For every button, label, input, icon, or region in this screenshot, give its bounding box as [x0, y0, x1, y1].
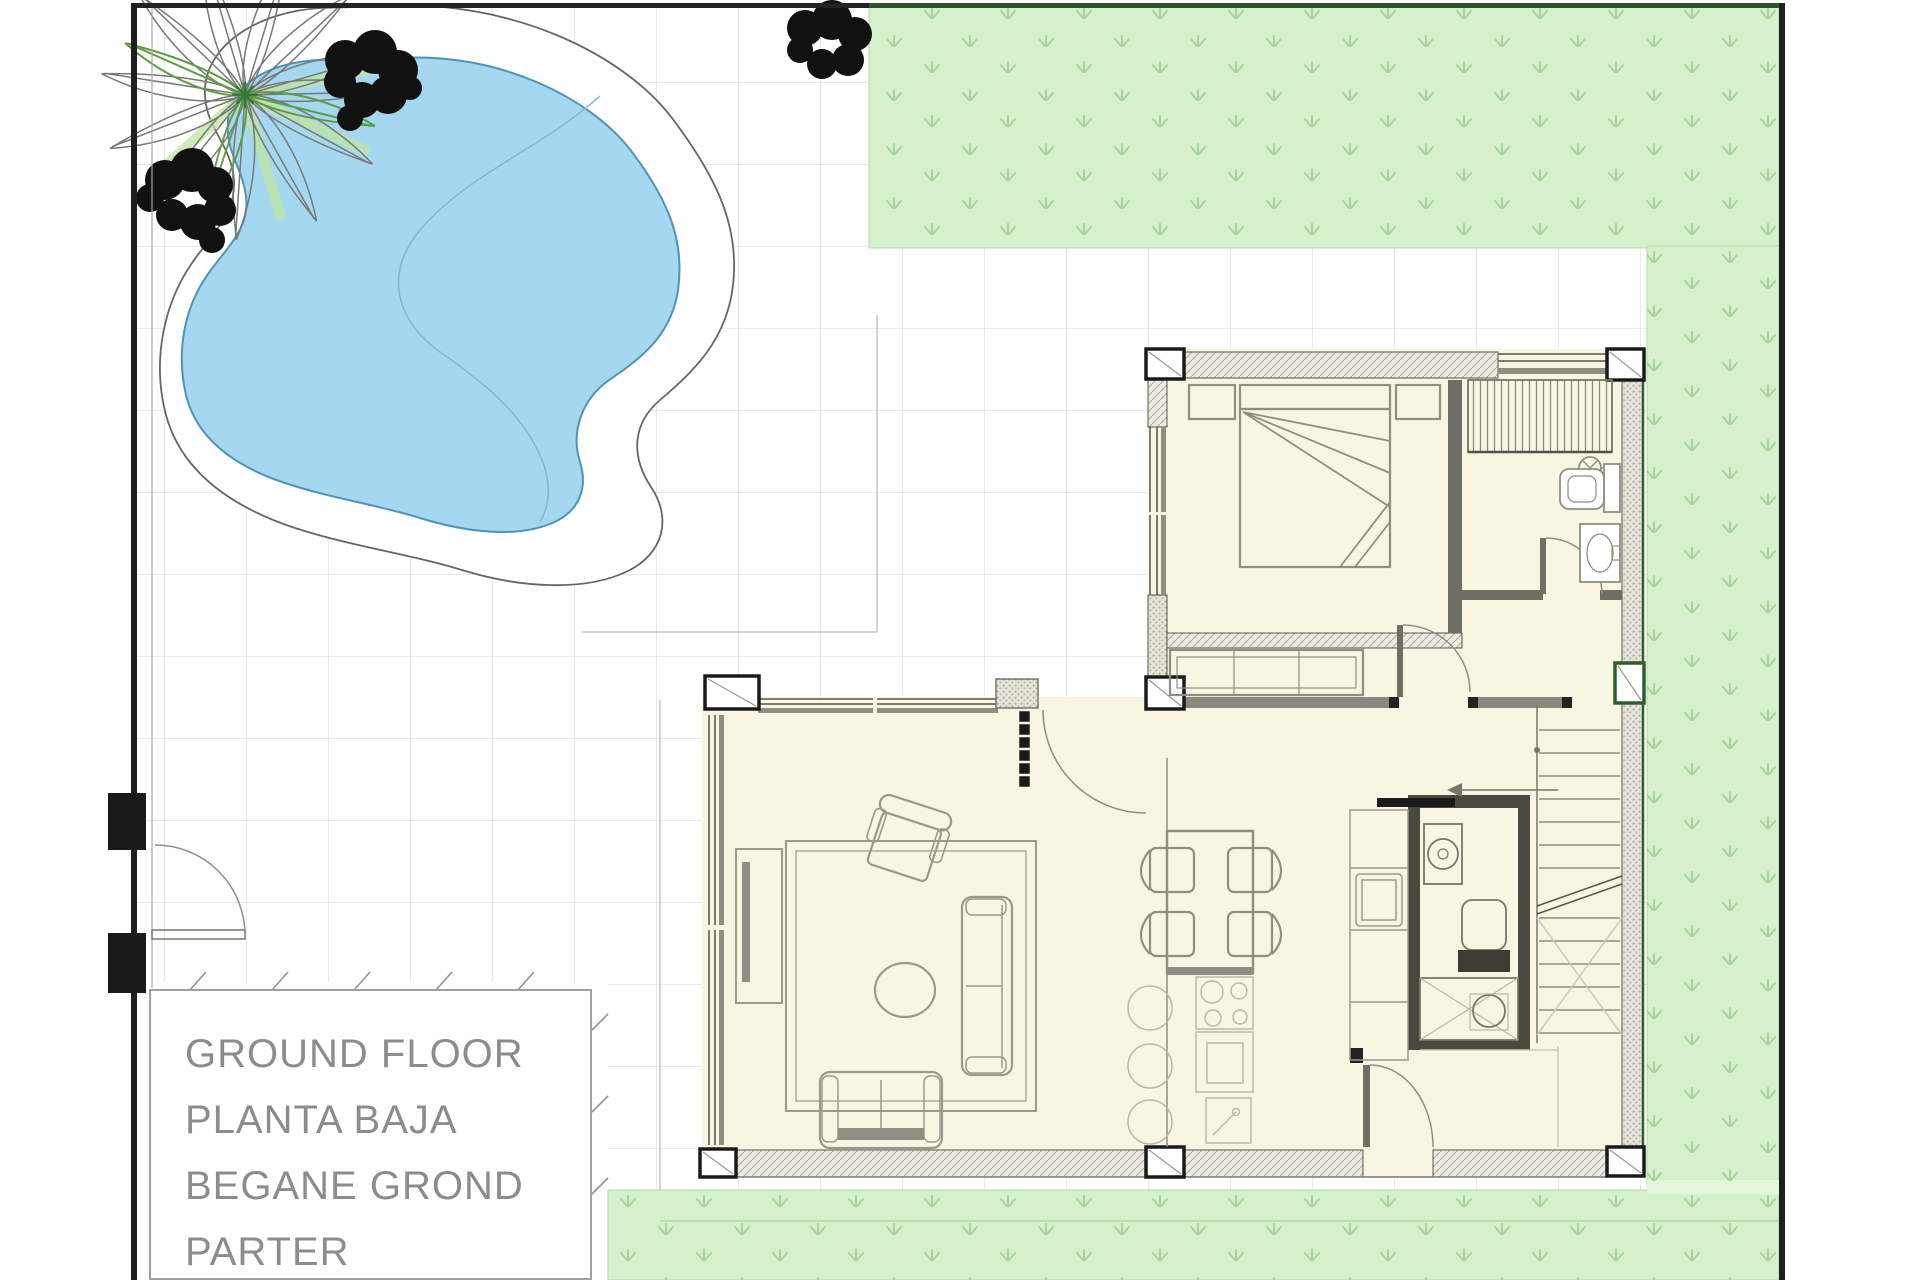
- living-wing-floor: [702, 697, 1643, 1177]
- boundary-top-green: [869, 3, 1784, 8]
- floor-plan-canvas: GROUND FLOOR PLANTA BAJA BEGANE GROND PA…: [0, 0, 1920, 1280]
- pillar-window-mullion: [996, 679, 1038, 708]
- sofa-horizontal: [820, 1072, 942, 1148]
- boundary-left-wall: [131, 4, 137, 1280]
- floor-label-en: GROUND FLOOR: [185, 1021, 590, 1087]
- floor-label-nl: BEGANE GROND: [185, 1153, 590, 1219]
- boundary-right-wall: [1779, 3, 1785, 1280]
- floor-label-es: PLANTA BAJA: [185, 1087, 590, 1153]
- sink-main: [1580, 524, 1620, 582]
- boundary-top-left: [131, 3, 869, 8]
- gate-post-upper: [108, 793, 146, 850]
- toilet-main: [1560, 464, 1620, 512]
- title-block: GROUND FLOOR PLANTA BAJA BEGANE GROND PA…: [149, 989, 592, 1280]
- floor-label-ro: PARTER: [185, 1219, 590, 1280]
- sliding-door-bar: [1377, 798, 1455, 807]
- shower-floor: [1468, 380, 1612, 452]
- gate-post-lower: [108, 933, 146, 993]
